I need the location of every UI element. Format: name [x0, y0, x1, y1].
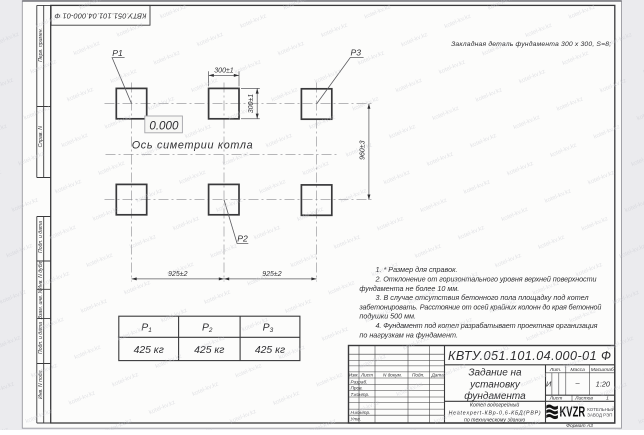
svg-text:Р1: Р1: [112, 48, 123, 58]
svg-text:Взам. инв. N: Взам. инв. N: [38, 289, 44, 319]
svg-text:Формат А3: Формат А3: [566, 423, 593, 429]
svg-text:Р2: Р2: [237, 234, 248, 244]
svg-text:по нагрузкам на фундамент.: по нагрузкам на фундамент.: [359, 330, 458, 339]
svg-text:ЗАВОД РЭП: ЗАВОД РЭП: [587, 413, 612, 418]
svg-text:по техническому зданию: по техническому зданию: [464, 418, 525, 424]
svg-text:Задание на: Задание на: [468, 368, 522, 379]
svg-text:Масса: Масса: [570, 367, 585, 373]
svg-text:Лит.: Лит.: [549, 367, 561, 373]
svg-text:КВТУ.051.101.04.000-01 Ф: КВТУ.051.101.04.000-01 Ф: [54, 11, 146, 20]
svg-text:Справ. N: Справ. N: [38, 126, 44, 148]
svg-text:забетонировать. Расстояние от: забетонировать. Расстояние от осей крайн…: [358, 302, 601, 311]
svg-text:Пров.: Пров.: [351, 385, 363, 390]
svg-text:0.000: 0.000: [149, 119, 179, 132]
svg-text:Подп.: Подп.: [412, 373, 424, 378]
svg-text:300±1: 300±1: [214, 68, 234, 75]
svg-text:Разраб.: Разраб.: [351, 379, 368, 384]
svg-text:2. Отклонение от горизонтально: 2. Отклонение от горизонтального уровня …: [375, 275, 597, 284]
svg-text:Подп. и дата: Подп. и дата: [38, 221, 44, 253]
svg-text:Закладная деталь фундамента 3: Закладная деталь фундамента 300 х 300, S…: [451, 40, 611, 48]
svg-text:И: И: [546, 379, 552, 388]
svg-text:Т.контр.: Т.контр.: [351, 392, 370, 397]
svg-text:4. Фундамент под котел разраба: 4. Фундамент под котел разрабатывает про…: [376, 321, 598, 330]
svg-text:Листов: Листов: [574, 396, 593, 402]
svg-text:Р3: Р3: [351, 48, 362, 58]
svg-text:Лист: Лист: [549, 396, 563, 402]
svg-text:Heatexpert-КВр-0,6-КБД(РВР): Heatexpert-КВр-0,6-КБД(РВР): [449, 410, 541, 416]
svg-text:N докум.: N докум.: [383, 373, 402, 378]
svg-text:Масштаб: Масштаб: [591, 367, 614, 373]
svg-text:Утв.: Утв.: [351, 417, 362, 422]
svg-text:1:20: 1:20: [596, 379, 611, 388]
svg-text:Лист: Лист: [360, 373, 373, 378]
svg-text:–: –: [574, 378, 580, 387]
svg-text:фундамента не более 10 мм.: фундамента не более 10 мм.: [359, 284, 459, 293]
svg-text:КОТЕЛЬНЫЙ: КОТЕЛЬНЫЙ: [587, 407, 615, 412]
svg-text:Изм.: Изм.: [349, 373, 359, 378]
svg-text:Перв. примен.: Перв. примен.: [38, 28, 44, 62]
svg-text:425 кг: 425 кг: [134, 345, 164, 356]
svg-text:установку: установку: [469, 379, 521, 390]
